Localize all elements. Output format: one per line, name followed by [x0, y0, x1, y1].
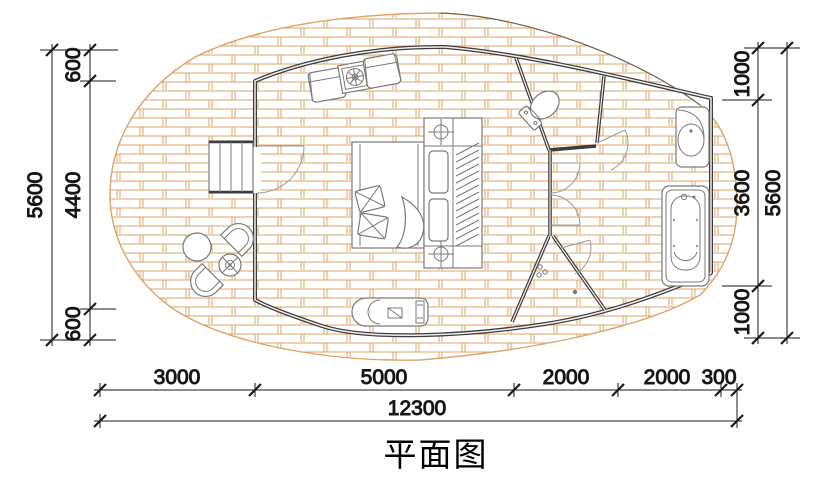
bench-cushion [429, 199, 448, 241]
dim-bottom-3000: 3000 [154, 366, 201, 389]
dim-bottom-2000-b: 2000 [644, 366, 691, 389]
dimension-chain-left: 600 4400 600 5600 [24, 44, 118, 346]
dim-right-1000-bottom: 1000 [731, 289, 754, 336]
floor-plan-page: 600 4400 600 5600 1000 3600 1000 5600 30… [0, 0, 837, 496]
bench-cushion [429, 151, 448, 193]
washbasin [676, 107, 709, 167]
parasol-table [219, 254, 241, 276]
dim-bottom-300: 300 [701, 366, 736, 389]
dim-bottom-2000-a: 2000 [543, 366, 590, 389]
dimension-chain-right: 1000 3600 1000 5600 [722, 42, 800, 344]
dim-left-4400: 4400 [62, 172, 85, 219]
pillow [357, 213, 388, 239]
tv-console [352, 298, 428, 326]
dim-left-600-bottom: 600 [62, 306, 85, 341]
dim-right-5600: 5600 [762, 170, 785, 217]
floor-plan-canvas: 600 4400 600 5600 1000 3600 1000 5600 30… [0, 0, 837, 496]
entry-stairs [209, 141, 253, 193]
bathtub [662, 186, 709, 286]
outdoor-round-table [183, 233, 211, 261]
dim-bottom-5000: 5000 [361, 366, 408, 389]
dim-right-1000-top: 1000 [731, 51, 754, 98]
dimension-chain-bottom: 3000 5000 2000 2000 300 12300 [94, 366, 743, 428]
dim-right-3600: 3600 [731, 170, 754, 217]
double-bed [352, 142, 424, 248]
dim-left-5600: 5600 [24, 172, 47, 219]
dim-bottom-12300: 12300 [388, 397, 446, 420]
dim-left-600-top: 600 [62, 47, 85, 82]
drawing-title: 平面图 [384, 436, 489, 473]
wardrobe-unit [424, 118, 482, 268]
armchair-right [363, 53, 402, 88]
